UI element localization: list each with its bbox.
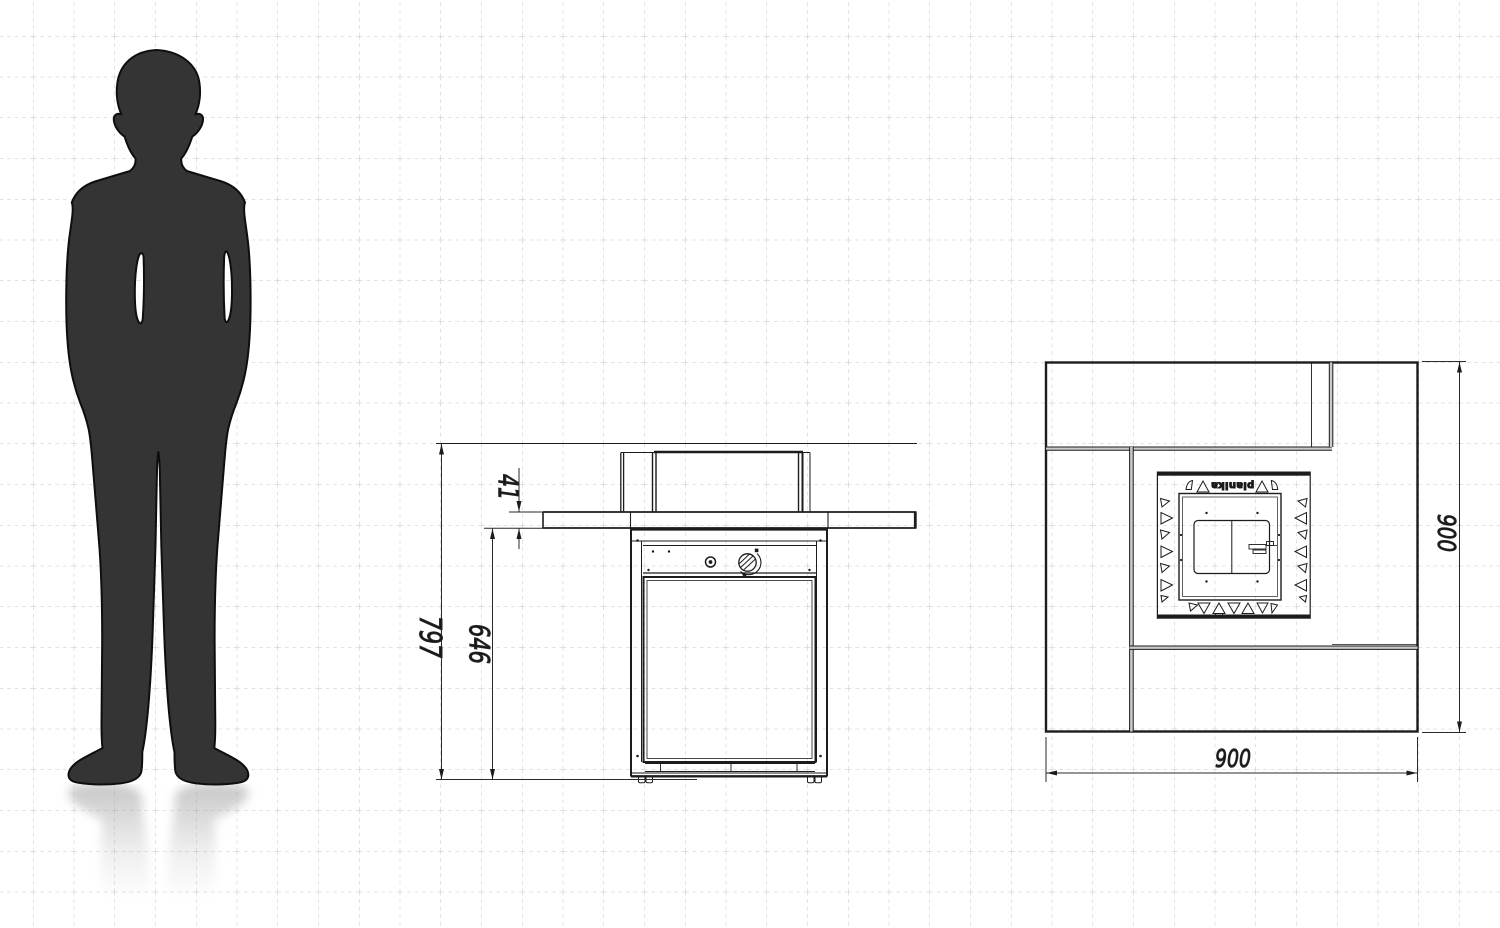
technical-drawing-page: 797 646 41 xyxy=(0,0,1500,928)
dim-text-646: 646 xyxy=(463,624,496,664)
dim-text-41: 41 xyxy=(492,474,525,500)
dim-text-900-depth: 900 xyxy=(1432,514,1461,552)
dim-text-797: 797 xyxy=(412,616,447,658)
brand-logo-text: planika xyxy=(1211,480,1254,491)
technical-drawing-canvas: 797 646 41 xyxy=(0,0,1500,928)
dim-text-900-width: 900 xyxy=(1215,744,1251,773)
